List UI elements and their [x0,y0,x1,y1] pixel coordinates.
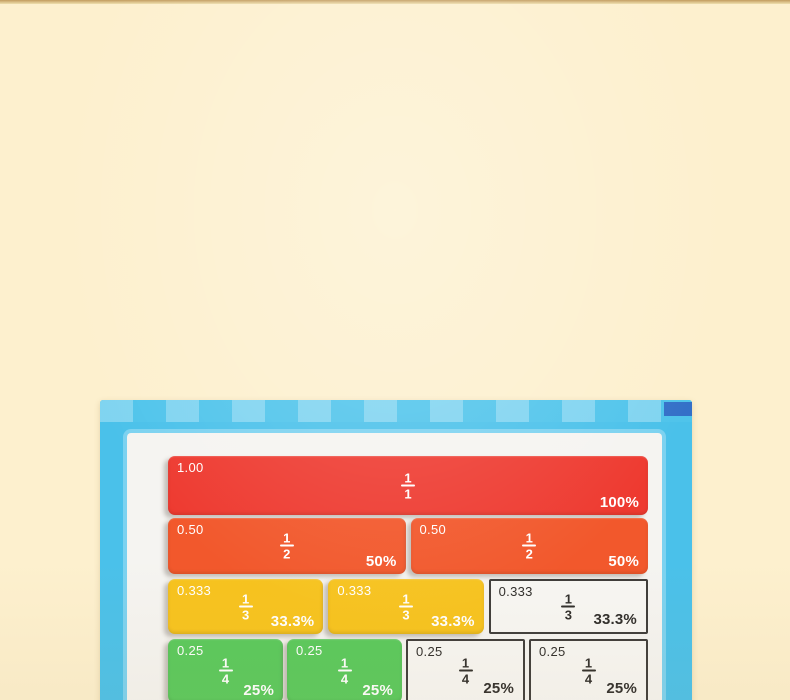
decimal-label: 0.25 [539,645,566,658]
decimal-label: 1.00 [177,461,204,474]
decimal-label: 0.50 [420,523,447,536]
fraction-board: 1.00 1 1 100% 0.50 1 [100,400,692,700]
percent-label: 33.3% [593,612,637,627]
decimal-label: 0.333 [177,584,211,597]
percent-label: 33.3% [431,614,475,629]
fraction-tile-1-4: 0.25 1 4 25% [168,639,283,700]
fraction-tile-1-1: 1.00 1 1 100% [168,456,648,515]
fraction-numerator: 1 [283,531,290,546]
percent-label: 50% [608,554,639,569]
fraction-numerator: 1 [585,656,592,671]
percent-label: 25% [606,681,637,696]
fraction-tile-1-2: 0.50 1 2 50% [168,518,406,574]
fraction-label: 1 4 [582,658,596,685]
fraction-label: 1 3 [239,593,253,620]
fraction-tile-1-3: 0.333 1 3 33.3% [328,579,483,634]
printed-cell-1-4: 0.25 1 4 25% [406,639,525,700]
fraction-label: 1 2 [280,533,294,560]
fraction-numerator: 1 [222,656,229,671]
row-quarters: 0.25 1 4 25% 0.25 1 4 [168,639,648,700]
fraction-numerator: 1 [402,591,409,606]
fraction-numerator: 1 [404,470,411,485]
percent-label: 25% [243,683,274,698]
fraction-label: 1 2 [522,533,536,560]
percent-label: 25% [483,681,514,696]
fraction-label: 1 3 [561,593,575,620]
decimal-label: 0.25 [296,644,323,657]
fraction-tile-1-2: 0.50 1 2 50% [411,518,649,574]
decimal-label: 0.333 [499,585,533,598]
decimal-label: 0.333 [337,584,371,597]
fraction-numerator: 1 [565,591,572,606]
fraction-denominator: 1 [404,486,411,501]
fraction-label: 1 1 [401,472,415,499]
fraction-denominator: 4 [585,672,592,687]
fraction-denominator: 2 [283,547,290,562]
decimal-label: 0.25 [416,645,443,658]
decimal-label: 0.50 [177,523,204,536]
fraction-tile-1-4: 0.25 1 4 25% [287,639,402,700]
tiles-grid: 1.00 1 1 100% 0.50 1 [168,456,648,700]
fraction-denominator: 4 [341,672,348,687]
row-wholes: 1.00 1 1 100% [168,456,648,515]
fraction-numerator: 1 [341,656,348,671]
fraction-label: 1 4 [219,658,233,685]
background-top-strip [0,0,790,4]
fraction-label: 1 4 [459,658,473,685]
fraction-numerator: 1 [242,591,249,606]
fraction-denominator: 4 [462,672,469,687]
percent-label: 100% [600,495,639,510]
row-halves: 0.50 1 2 50% 0.50 1 2 [168,518,648,574]
fraction-denominator: 2 [526,547,533,562]
decimal-label: 0.25 [177,644,204,657]
fraction-tile-1-3: 0.333 1 3 33.3% [168,579,323,634]
board-checker-edge [100,400,692,422]
fraction-denominator: 3 [402,607,409,622]
row-thirds: 0.333 1 3 33.3% 0.333 1 3 [168,579,648,634]
fraction-denominator: 3 [565,607,572,622]
fraction-numerator: 1 [526,531,533,546]
percent-label: 25% [362,683,393,698]
fraction-label: 1 4 [338,658,352,685]
product-photo: 1.00 1 1 100% 0.50 1 [0,0,790,700]
fraction-label: 1 3 [399,593,413,620]
percent-label: 33.3% [271,614,315,629]
fraction-denominator: 4 [222,672,229,687]
board-white-surface: 1.00 1 1 100% 0.50 1 [127,433,662,700]
printed-cell-1-4: 0.25 1 4 25% [529,639,648,700]
board-corner-tab [664,402,692,416]
percent-label: 50% [366,554,397,569]
printed-cell-1-3: 0.333 1 3 33.3% [489,579,648,634]
fraction-denominator: 3 [242,607,249,622]
fraction-numerator: 1 [462,656,469,671]
